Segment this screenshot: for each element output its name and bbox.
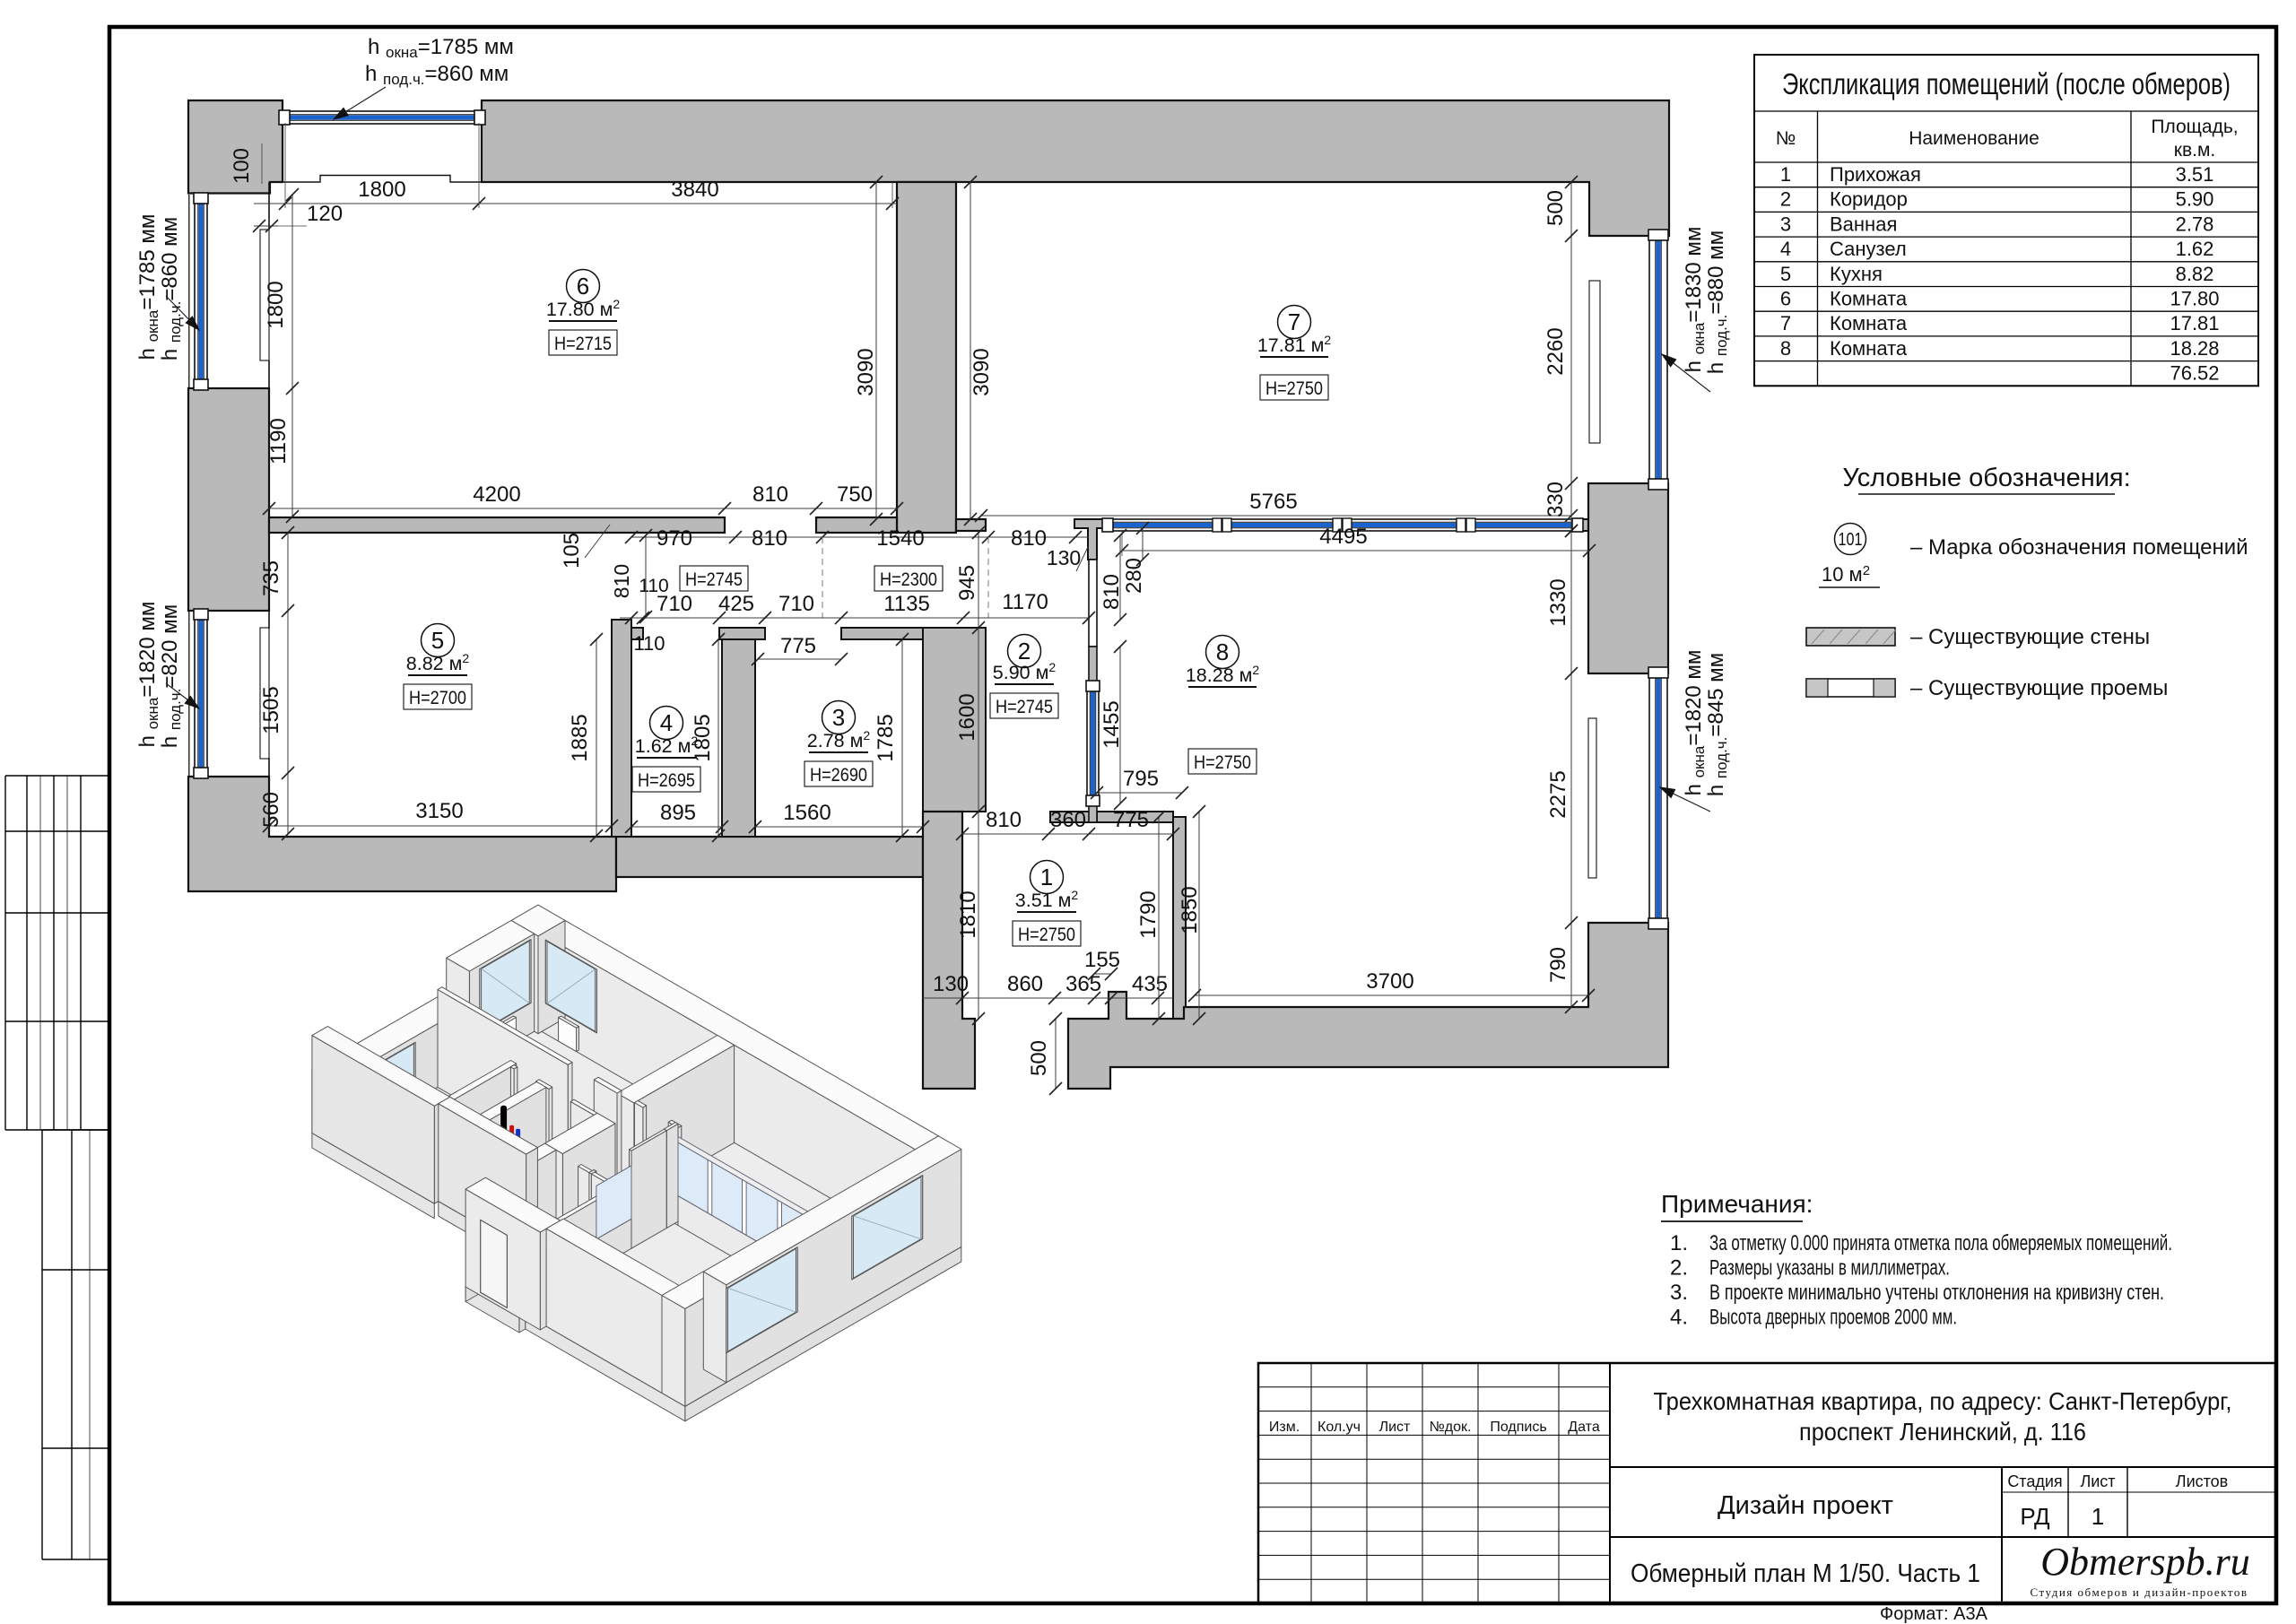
svg-text:795: 795 bbox=[1123, 767, 1159, 791]
svg-text:810: 810 bbox=[752, 526, 787, 551]
svg-text:Комната: Комната bbox=[1830, 337, 1908, 360]
svg-text:2: 2 bbox=[1018, 638, 1031, 664]
svg-text:1810: 1810 bbox=[956, 890, 980, 938]
svg-text:Лист: Лист bbox=[2080, 1472, 2115, 1490]
svg-text:17.81: 17.81 bbox=[2170, 312, 2219, 334]
svg-text:5: 5 bbox=[1780, 263, 1791, 285]
svg-text:3.: 3. bbox=[1670, 1281, 1688, 1305]
svg-text:101: 101 bbox=[1839, 530, 1863, 550]
svg-text:1505: 1505 bbox=[259, 686, 283, 734]
svg-text:кв.м.: кв.м. bbox=[2174, 140, 2215, 161]
svg-text:1135: 1135 bbox=[883, 592, 930, 616]
svg-text:Наименование: Наименование bbox=[1909, 128, 2039, 149]
svg-text:№док.: №док. bbox=[1430, 1420, 1472, 1435]
svg-text:3090: 3090 bbox=[970, 348, 994, 395]
svg-text:– Существующие стены: – Существующие стены bbox=[1910, 625, 2150, 649]
svg-text:130: 130 bbox=[1047, 546, 1081, 569]
svg-text:Прихожая: Прихожая bbox=[1830, 163, 1921, 186]
svg-text:3: 3 bbox=[832, 704, 845, 731]
svg-text:Изм.: Изм. bbox=[1269, 1420, 1300, 1435]
svg-text:4: 4 bbox=[1780, 238, 1791, 260]
svg-text:8.82: 8.82 bbox=[2176, 263, 2214, 285]
svg-text:Площадь,: Площадь, bbox=[2151, 117, 2238, 137]
svg-text:3.51: 3.51 bbox=[2176, 163, 2214, 186]
svg-text:1850: 1850 bbox=[1178, 886, 1202, 934]
svg-text:2.: 2. bbox=[1670, 1256, 1688, 1281]
svg-text:В проекте минимально учтены от: В проекте минимально учтены отклонения н… bbox=[1709, 1281, 2164, 1305]
svg-text:365: 365 bbox=[1065, 972, 1101, 996]
svg-text:1170: 1170 bbox=[1002, 590, 1048, 614]
svg-text:500: 500 bbox=[1544, 190, 1568, 226]
svg-text:1330: 1330 bbox=[1546, 578, 1570, 626]
svg-text:105: 105 bbox=[560, 533, 584, 569]
svg-text:Дата: Дата bbox=[1568, 1420, 1600, 1435]
svg-text:1.: 1. bbox=[1670, 1231, 1688, 1255]
svg-text:6: 6 bbox=[577, 273, 589, 300]
svg-text:1190: 1190 bbox=[266, 418, 291, 465]
svg-text:810: 810 bbox=[752, 482, 788, 507]
svg-text:3.51 м2: 3.51 м2 bbox=[1015, 888, 1079, 911]
svg-text:4: 4 bbox=[660, 709, 673, 736]
svg-text:810: 810 bbox=[1100, 574, 1124, 610]
svg-text:110: 110 bbox=[633, 632, 665, 655]
svg-text:1.62: 1.62 bbox=[2176, 238, 2214, 260]
svg-text:– Существующие проемы: – Существующие проемы bbox=[1910, 676, 2168, 700]
svg-text:Комната: Комната bbox=[1830, 288, 1908, 310]
svg-text:1800: 1800 bbox=[264, 281, 288, 328]
svg-text:790: 790 bbox=[1546, 947, 1570, 983]
svg-text:3700: 3700 bbox=[1366, 969, 1413, 994]
svg-text:Размеры указаны в миллиметрах.: Размеры указаны в миллиметрах. bbox=[1709, 1256, 1950, 1281]
svg-text:860: 860 bbox=[1007, 972, 1043, 996]
svg-text:5: 5 bbox=[431, 627, 444, 654]
svg-text:110: 110 bbox=[639, 576, 668, 596]
svg-text:5.90 м2: 5.90 м2 bbox=[993, 660, 1057, 683]
svg-text:775: 775 bbox=[1113, 808, 1149, 832]
svg-text:За отметку 0.000 принята отмет: За отметку 0.000 принята отметка пола об… bbox=[1709, 1231, 2172, 1255]
svg-text:Обмерный план М 1/50. Часть 1: Обмерный план М 1/50. Часть 1 bbox=[1631, 1559, 1980, 1588]
svg-text:435: 435 bbox=[1132, 972, 1168, 996]
svg-text:проспект Ленинский, д. 116: проспект Ленинский, д. 116 bbox=[1799, 1418, 2086, 1446]
svg-text:76.52: 76.52 bbox=[2170, 362, 2219, 385]
svg-text:155: 155 bbox=[1084, 948, 1120, 972]
svg-text:1790: 1790 bbox=[1136, 890, 1161, 938]
svg-text:Студия обмеров и дизайн-проект: Студия обмеров и дизайн-проектов bbox=[2031, 1585, 2248, 1599]
svg-text:17.80 м2: 17.80 м2 bbox=[546, 297, 621, 320]
svg-text:945: 945 bbox=[955, 565, 979, 601]
svg-text:100: 100 bbox=[230, 148, 254, 184]
svg-text:3840: 3840 bbox=[671, 178, 718, 202]
svg-text:7: 7 bbox=[1288, 308, 1300, 335]
svg-text:775: 775 bbox=[780, 634, 816, 658]
svg-text:Экспликация помещений (после о: Экспликация помещений (после обмеров) bbox=[1782, 67, 2231, 100]
svg-text:810: 810 bbox=[610, 564, 633, 598]
svg-text:18.28: 18.28 bbox=[2170, 337, 2219, 360]
svg-text:1: 1 bbox=[1780, 163, 1791, 186]
svg-text:1800: 1800 bbox=[358, 178, 405, 202]
svg-text:1.62 м2: 1.62 м2 bbox=[635, 734, 699, 757]
svg-text:17.81 м2: 17.81 м2 bbox=[1257, 333, 1332, 356]
svg-text:2260: 2260 bbox=[1544, 327, 1568, 375]
svg-text:Коридор: Коридор bbox=[1830, 188, 1908, 211]
svg-text:750: 750 bbox=[837, 482, 873, 507]
svg-text:425: 425 bbox=[718, 592, 754, 616]
svg-text:Ванная: Ванная bbox=[1830, 213, 1897, 235]
svg-text:Высота дверных проемов 2000 мм: Высота дверных проемов 2000 мм. bbox=[1709, 1306, 1957, 1330]
svg-text:735: 735 bbox=[259, 560, 283, 596]
svg-text:H=2700: H=2700 bbox=[409, 688, 466, 708]
svg-text:710: 710 bbox=[778, 592, 814, 616]
svg-text:H=2300: H=2300 bbox=[880, 569, 937, 590]
svg-text:7: 7 bbox=[1780, 312, 1791, 334]
svg-text:4200: 4200 bbox=[473, 482, 520, 507]
svg-text:Санузел: Санузел bbox=[1830, 238, 1907, 260]
svg-text:3150: 3150 bbox=[415, 799, 463, 823]
svg-text:280: 280 bbox=[1122, 558, 1146, 594]
svg-text:1600: 1600 bbox=[955, 693, 979, 741]
svg-text:3: 3 bbox=[1780, 213, 1791, 235]
svg-text:Примечания:: Примечания: bbox=[1661, 1190, 1813, 1218]
svg-text:8.82 м2: 8.82 м2 bbox=[406, 651, 470, 674]
svg-text:Условные обозначения:: Условные обозначения: bbox=[1842, 464, 2130, 492]
svg-text:2.78: 2.78 bbox=[2176, 213, 2214, 235]
svg-text:Obmerspb.ru: Obmerspb.ru bbox=[2040, 1540, 2249, 1584]
svg-text:5765: 5765 bbox=[1249, 490, 1297, 514]
svg-text:5.90: 5.90 bbox=[2176, 188, 2214, 211]
svg-text:130: 130 bbox=[933, 972, 969, 996]
svg-text:18.28 м2: 18.28 м2 bbox=[1186, 663, 1260, 686]
svg-text:№: № bbox=[1776, 128, 1796, 149]
svg-text:1: 1 bbox=[1040, 864, 1053, 890]
svg-text:4495: 4495 bbox=[1319, 525, 1367, 549]
svg-text:H=2695: H=2695 bbox=[638, 770, 695, 791]
svg-text:560: 560 bbox=[259, 792, 283, 828]
svg-text:2.78 м2: 2.78 м2 bbox=[807, 728, 871, 751]
svg-text:– Марка обозначения помещений: – Марка обозначения помещений bbox=[1910, 535, 2248, 560]
svg-text:330: 330 bbox=[1544, 482, 1568, 517]
svg-text:6: 6 bbox=[1780, 288, 1791, 310]
svg-text:Кол.уч: Кол.уч bbox=[1318, 1420, 1361, 1435]
svg-text:1885: 1885 bbox=[568, 714, 592, 761]
svg-text:Стадия: Стадия bbox=[2007, 1472, 2062, 1490]
svg-text:4.: 4. bbox=[1670, 1306, 1688, 1330]
svg-text:Дизайн проект: Дизайн проект bbox=[1718, 1491, 1893, 1520]
svg-text:Трехкомнатная квартира, по адр: Трехкомнатная квартира, по адресу: Санкт… bbox=[1654, 1387, 2232, 1415]
svg-text:H=2745: H=2745 bbox=[685, 569, 743, 590]
svg-text:Кухня: Кухня bbox=[1830, 263, 1883, 285]
svg-text:8: 8 bbox=[1216, 638, 1229, 665]
svg-text:H=2690: H=2690 bbox=[810, 765, 867, 786]
svg-text:Комната: Комната bbox=[1830, 312, 1908, 334]
svg-text:8: 8 bbox=[1780, 337, 1791, 360]
svg-text:895: 895 bbox=[660, 801, 696, 825]
svg-text:1: 1 bbox=[2092, 1503, 2104, 1530]
svg-text:H=2750: H=2750 bbox=[1265, 378, 1323, 399]
svg-text:3090: 3090 bbox=[854, 348, 878, 395]
svg-text:1560: 1560 bbox=[783, 801, 831, 825]
svg-text:1455: 1455 bbox=[1100, 700, 1124, 748]
svg-text:Подпись: Подпись bbox=[1490, 1420, 1546, 1435]
svg-text:Лист: Лист bbox=[1379, 1420, 1411, 1435]
svg-text:810: 810 bbox=[986, 808, 1022, 832]
svg-text:360: 360 bbox=[1050, 808, 1086, 832]
svg-text:17.80: 17.80 bbox=[2170, 288, 2219, 310]
svg-text:H=2745: H=2745 bbox=[996, 697, 1053, 717]
svg-text:H=2750: H=2750 bbox=[1194, 752, 1251, 773]
svg-text:810: 810 bbox=[1011, 526, 1047, 551]
svg-text:1785: 1785 bbox=[874, 714, 898, 761]
svg-text:H=2715: H=2715 bbox=[554, 334, 612, 354]
svg-text:Формат: А3А: Формат: А3А bbox=[1880, 1604, 1988, 1624]
svg-text:H=2750: H=2750 bbox=[1018, 925, 1075, 945]
svg-text:970: 970 bbox=[657, 526, 692, 551]
svg-text:РД: РД bbox=[2020, 1503, 2050, 1530]
svg-text:2: 2 bbox=[1780, 188, 1791, 211]
svg-text:1540: 1540 bbox=[876, 526, 924, 551]
svg-text:120: 120 bbox=[307, 202, 343, 226]
svg-text:2275: 2275 bbox=[1546, 770, 1570, 818]
svg-text:500: 500 bbox=[1027, 1040, 1051, 1076]
svg-text:Листов: Листов bbox=[2176, 1472, 2228, 1490]
